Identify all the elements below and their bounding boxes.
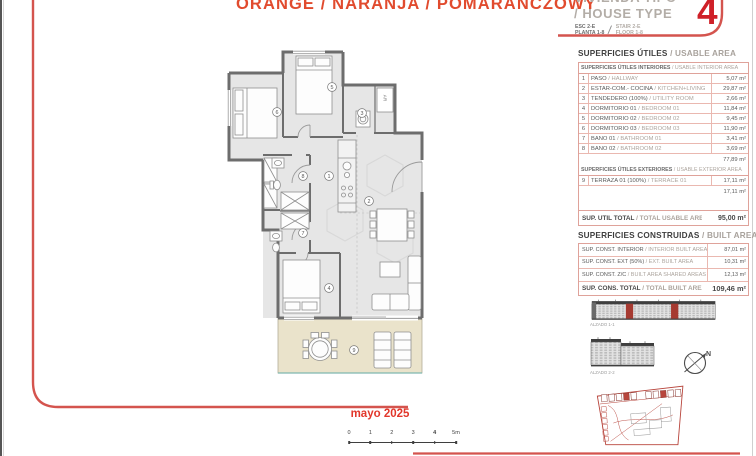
row-label: TERRAZA 01 (100%) / TERRACE 01 xyxy=(589,178,711,184)
row-number: 6 xyxy=(579,124,589,133)
row-value: 11,90 m² xyxy=(711,124,748,133)
exterior-subtotal-value: 17,11 m² xyxy=(712,186,748,197)
scale-tick-mark xyxy=(434,441,436,444)
scale-line xyxy=(349,442,457,443)
kitchen-counter xyxy=(338,140,356,212)
room-badge-number: 8 xyxy=(302,174,305,180)
scale-tick-label: 2 xyxy=(390,430,393,436)
table-row: 6DORMITORIO 03 / BEDROOM 0311,90 m² xyxy=(579,124,748,134)
compass-north-label: N xyxy=(706,351,711,358)
row-value: 3,41 m² xyxy=(711,134,748,143)
usable-interior-header-es: SUPERFICIES ÚTILES INTERIORES xyxy=(581,65,670,71)
page-title: ORANGE / NARANJA / POMARAŃCZOWY xyxy=(236,0,597,14)
built-total-en: / TOTAL BUILT AREA xyxy=(642,285,702,292)
exterior-subtotal-row: 17,11 m² xyxy=(579,186,748,197)
row-value: 9,45 m² xyxy=(711,114,748,123)
room-badge-number: 2 xyxy=(368,199,371,205)
usable-exterior-rows: 9TERRAZA 01 (100%) / TERRACE 0117,11 m² xyxy=(579,176,748,186)
site-key-plan xyxy=(593,381,693,456)
room-badge-number: 5 xyxy=(331,85,334,91)
usable-interior-header: SUPERFICIES ÚTILES INTERIORES / USABLE I… xyxy=(579,63,748,74)
row-label: SUP. CONST. INTERIOR / INTERIOR BUILT AR… xyxy=(579,247,707,253)
row-value: 12,13 m² xyxy=(707,269,748,281)
table-row: 2ESTAR-COM.- COCINA / KITCHEN+LIVING29,8… xyxy=(579,84,748,94)
dining-table xyxy=(370,209,414,241)
room-badge-number: 7 xyxy=(302,231,305,237)
row-label: BAÑO 02 / BATHROOM 02 xyxy=(589,146,711,152)
elevation-drawing-1 xyxy=(590,299,718,322)
page-edge-left-shadow xyxy=(3,0,4,456)
row-value: 10,31 m² xyxy=(707,257,748,269)
built-total-row: SUP. CONS. TOTAL / TOTAL BUILT AREA 109,… xyxy=(579,282,748,296)
built-rows: SUP. CONST. INTERIOR / INTERIOR BUILT AR… xyxy=(579,244,748,282)
row-value: 3,69 m² xyxy=(711,144,748,153)
row-number: 8 xyxy=(579,144,589,153)
table-row: 5DORMITORIO 02 / BEDROOM 029,45 m² xyxy=(579,114,748,124)
table-row: 3TENDEDERO (100%) / UTILITY ROOM2,66 m² xyxy=(579,94,748,104)
row-number: 9 xyxy=(579,176,589,185)
scale-tick-label: 0 xyxy=(347,430,350,436)
row-value: 17,11 m² xyxy=(711,176,748,185)
usable-interior-rows: 1PASO / HALLWAY5,07 m²2ESTAR-COM.- COCIN… xyxy=(579,74,748,154)
room-badge-number: 1 xyxy=(328,174,331,180)
ac-unit-label: AR xyxy=(383,95,388,102)
usable-exterior-header-es: SUPERFICIES ÚTILES EXTERIORES xyxy=(581,167,672,173)
elevation-drawing-2 xyxy=(590,336,656,369)
usable-heading-es: SUPERFICIES ÚTILES xyxy=(578,49,668,58)
table-row: SUP. CONST. Z/C / BUILT AREA SHARED AREA… xyxy=(579,269,748,282)
interior-subtotal-value: 77,89 m² xyxy=(712,154,748,165)
house-type-label-es: VIVIENDA TIPO xyxy=(574,0,677,5)
built-total-es: SUP. CONS. TOTAL xyxy=(582,285,640,292)
row-label: PASO / HALLWAY xyxy=(589,76,711,82)
date-label: mayo 2025 xyxy=(330,408,430,420)
row-label: SUP. CONST. Z/C / BUILT AREA SHARED AREA… xyxy=(579,272,707,278)
scale-bar: 012345m xyxy=(348,430,463,448)
interior-subtotal-row: 77,89 m² xyxy=(579,154,748,165)
built-heading-es: SUPERFICIES CONSTRUIDAS xyxy=(578,231,700,240)
row-number: 2 xyxy=(579,84,589,93)
usable-heading-en: / USABLE AREA xyxy=(670,49,736,58)
house-type-label-en: / HOUSE TYPE xyxy=(574,6,672,21)
usable-interior-header-en: / USABLE INTERIOR AREA xyxy=(672,65,738,71)
row-value: 87,01 m² xyxy=(707,244,748,256)
scale-tick-label: 1 xyxy=(369,430,372,436)
page-edge-left xyxy=(0,0,2,456)
row-number: 1 xyxy=(579,74,589,83)
usable-total-es: SUP. ÚTIL TOTAL xyxy=(582,215,634,222)
bed-double-dorm02 xyxy=(296,56,332,114)
usable-exterior-header-en: / USABLE EXTERIOR AREA xyxy=(674,167,742,173)
room-badge-number: 6 xyxy=(276,110,279,116)
row-label: TENDEDERO (100%) / UTILITY ROOM xyxy=(589,96,711,102)
scale-tick-mark xyxy=(348,441,350,444)
scale-tick-label: 4 xyxy=(433,430,436,436)
brochure-page: ORANGE / NARANJA / POMARAŃCZOWY VIVIENDA… xyxy=(0,0,756,456)
bed-double-dorm03 xyxy=(233,88,277,138)
row-label: DORMITORIO 03 / BEDROOM 03 xyxy=(589,126,711,132)
page-edge-right xyxy=(752,0,753,456)
slash-divider: / xyxy=(607,23,612,37)
row-value: 2,66 m² xyxy=(711,94,748,103)
floor-label: FLOOR 1-8 xyxy=(616,30,643,36)
room-badge-number: 3 xyxy=(361,111,364,117)
built-total-value: 109,46 m² xyxy=(702,282,748,296)
row-label: DORMITORIO 01 / BEDROOM 01 xyxy=(589,106,711,112)
table-row: 4DORMITORIO 01 / BEDROOM 0111,84 m² xyxy=(579,104,748,114)
usable-area-table: SUPERFICIES ÚTILES INTERIORES / USABLE I… xyxy=(578,62,749,226)
usable-area-heading: SUPERFICIES ÚTILES / USABLE AREA xyxy=(578,49,751,58)
row-label: SUP. CONST. EXT (50%) / EXT. BUILT AREA xyxy=(579,259,707,265)
planta-label: PLANTA 1-8 xyxy=(575,30,604,36)
elevation-1-label: ALZADO 1-1 xyxy=(590,322,615,327)
elevation-2-label: ALZADO 2-2 xyxy=(590,370,615,375)
scale-tick-label: 5m xyxy=(452,430,460,436)
table-row: SUP. CONST. INTERIOR / INTERIOR BUILT AR… xyxy=(579,244,748,257)
row-number: 7 xyxy=(579,134,589,143)
built-heading-en: / BUILT AREA xyxy=(702,231,756,240)
scale-tick-label: 3 xyxy=(412,430,415,436)
table-row: 9TERRAZA 01 (100%) / TERRACE 0117,11 m² xyxy=(579,176,748,186)
table-row: 7BAÑO 01 / BATHROOM 013,41 m² xyxy=(579,134,748,144)
scale-tick-mark xyxy=(391,441,393,444)
row-label: DORMITORIO 02 / BEDROOM 02 xyxy=(589,116,711,122)
usable-exterior-header: SUPERFICIES ÚTILES EXTERIORES / USABLE E… xyxy=(579,165,748,176)
row-label: ESTAR-COM.- COCINA / KITCHEN+LIVING xyxy=(589,86,711,92)
row-number: 4 xyxy=(579,104,589,113)
row-label: BAÑO 01 / BATHROOM 01 xyxy=(589,136,711,142)
row-number: 5 xyxy=(579,114,589,123)
row-value: 11,84 m² xyxy=(711,104,748,113)
house-type-number: 4 xyxy=(697,0,718,33)
usable-total-value: 95,00 m² xyxy=(702,211,748,225)
room-badge-number: 4 xyxy=(328,286,331,292)
row-number: 3 xyxy=(579,94,589,103)
row-value: 29,87 m² xyxy=(711,84,748,93)
usable-total-en: / TOTAL USABLE AREA xyxy=(636,215,702,222)
bed-double-dorm01 xyxy=(283,260,320,313)
table-row: 1PASO / HALLWAY5,07 m² xyxy=(579,74,748,84)
table-row: 8BAÑO 02 / BATHROOM 023,69 m² xyxy=(579,144,748,154)
scale-tick-mark xyxy=(412,441,414,444)
stair-floor-block: ESC 2-E PLANTA 1-8 / STAIR 2-E FLOOR 1-8 xyxy=(575,23,643,37)
usable-total-row: SUP. ÚTIL TOTAL / TOTAL USABLE AREA 95,0… xyxy=(579,210,748,225)
scale-tick-mark xyxy=(370,441,372,444)
table-row: SUP. CONST. EXT (50%) / EXT. BUILT AREA1… xyxy=(579,257,748,270)
floor-plan: AR 123456789 xyxy=(222,30,432,380)
room-badge-number: 9 xyxy=(353,348,356,354)
row-value: 5,07 m² xyxy=(711,74,748,83)
built-area-heading: SUPERFICIES CONSTRUIDAS / BUILT AREA xyxy=(578,231,751,240)
scale-tick-mark xyxy=(455,441,457,444)
built-area-table: SUP. CONST. INTERIOR / INTERIOR BUILT AR… xyxy=(578,243,749,296)
